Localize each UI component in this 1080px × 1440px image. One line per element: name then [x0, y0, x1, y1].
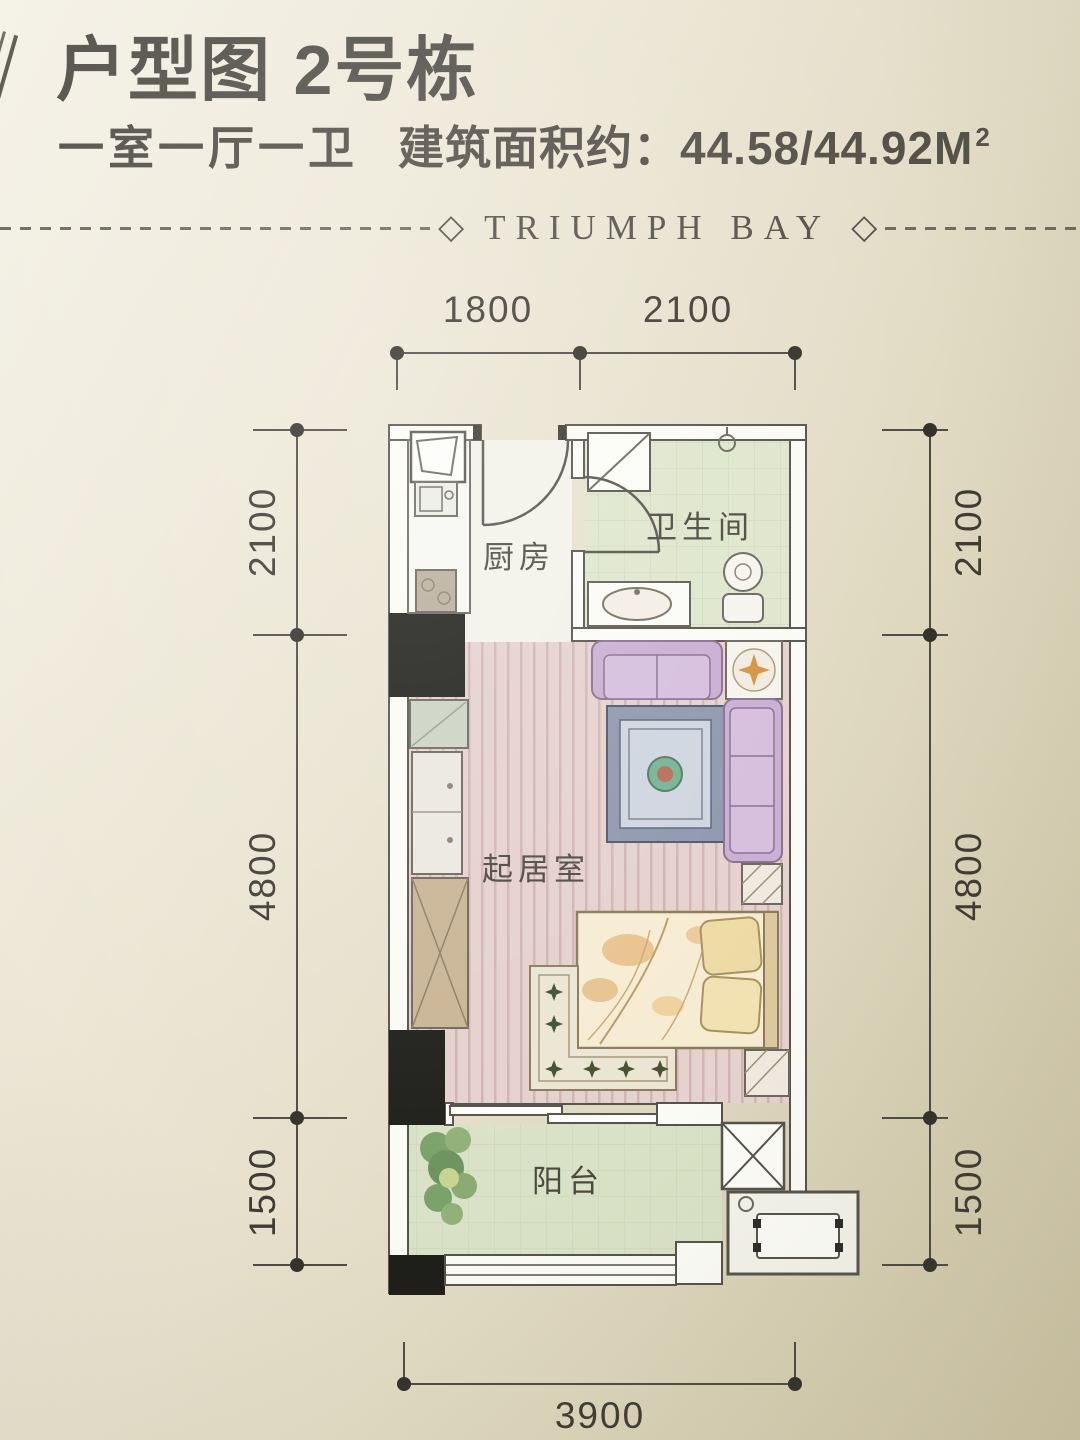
- three-seat-sofa: [724, 699, 782, 862]
- floor-plan: 厨房 卫生间 起居室 阳台 1800 2100 3900: [0, 0, 1080, 1440]
- column-left-mid: [389, 1030, 445, 1125]
- dim-top-right: 2100: [643, 289, 733, 330]
- pillow: [700, 976, 762, 1034]
- bedding-pattern: [582, 978, 618, 1002]
- headboard: [764, 912, 778, 1048]
- cabinet-handle: [447, 783, 453, 789]
- column-balcony-corner: [389, 1255, 445, 1295]
- dim-right-middle: 4800: [948, 831, 989, 921]
- bedding-pattern: [602, 934, 654, 966]
- right-wall: [790, 440, 806, 1192]
- balcony-label: 阳台: [532, 1164, 604, 1199]
- left-wall: [389, 440, 408, 1293]
- balcony-wall-right: [657, 1103, 722, 1125]
- entry-door-jambs: [473, 425, 566, 440]
- bathroom-bottom-wall: [572, 628, 806, 641]
- bathroom-wall-lower: [572, 551, 584, 628]
- dim-bottom: 3900: [555, 1395, 645, 1436]
- two-seat-sofa: [592, 641, 722, 699]
- vanity-faucet: [634, 589, 640, 595]
- dim-left-middle: 4800: [242, 831, 283, 921]
- kitchen-label: 厨房: [483, 540, 555, 575]
- cabinet-handle: [447, 837, 453, 843]
- kitchen: [408, 432, 470, 613]
- living-room-label: 起居室: [482, 852, 590, 887]
- bathroom-label: 卫生间: [646, 510, 754, 545]
- bedside-table: [745, 1050, 789, 1096]
- pillow: [700, 917, 762, 976]
- bathroom-wall-upper: [572, 440, 584, 478]
- dim-left-upper: 2100: [242, 487, 283, 577]
- shaft-box: [722, 1123, 784, 1189]
- bed: [577, 912, 778, 1048]
- living-rug: [607, 706, 724, 842]
- washer: [757, 1214, 839, 1258]
- side-table: [742, 864, 782, 904]
- dim-right-upper: 2100: [948, 487, 989, 577]
- column-kitchen-corner: [389, 613, 465, 697]
- corner-table: [726, 641, 782, 699]
- balcony-sill: [676, 1242, 722, 1284]
- balcony-sliding-door: [450, 1104, 657, 1123]
- kitchen-stove: [416, 570, 456, 612]
- balcony-railing: [445, 1255, 676, 1285]
- dim-right-lower: 1500: [948, 1147, 989, 1237]
- cabinet: [412, 752, 462, 874]
- coffee-table-center: [657, 766, 673, 782]
- dim-left-lower: 1500: [242, 1147, 283, 1237]
- dim-top-left: 1800: [443, 289, 533, 330]
